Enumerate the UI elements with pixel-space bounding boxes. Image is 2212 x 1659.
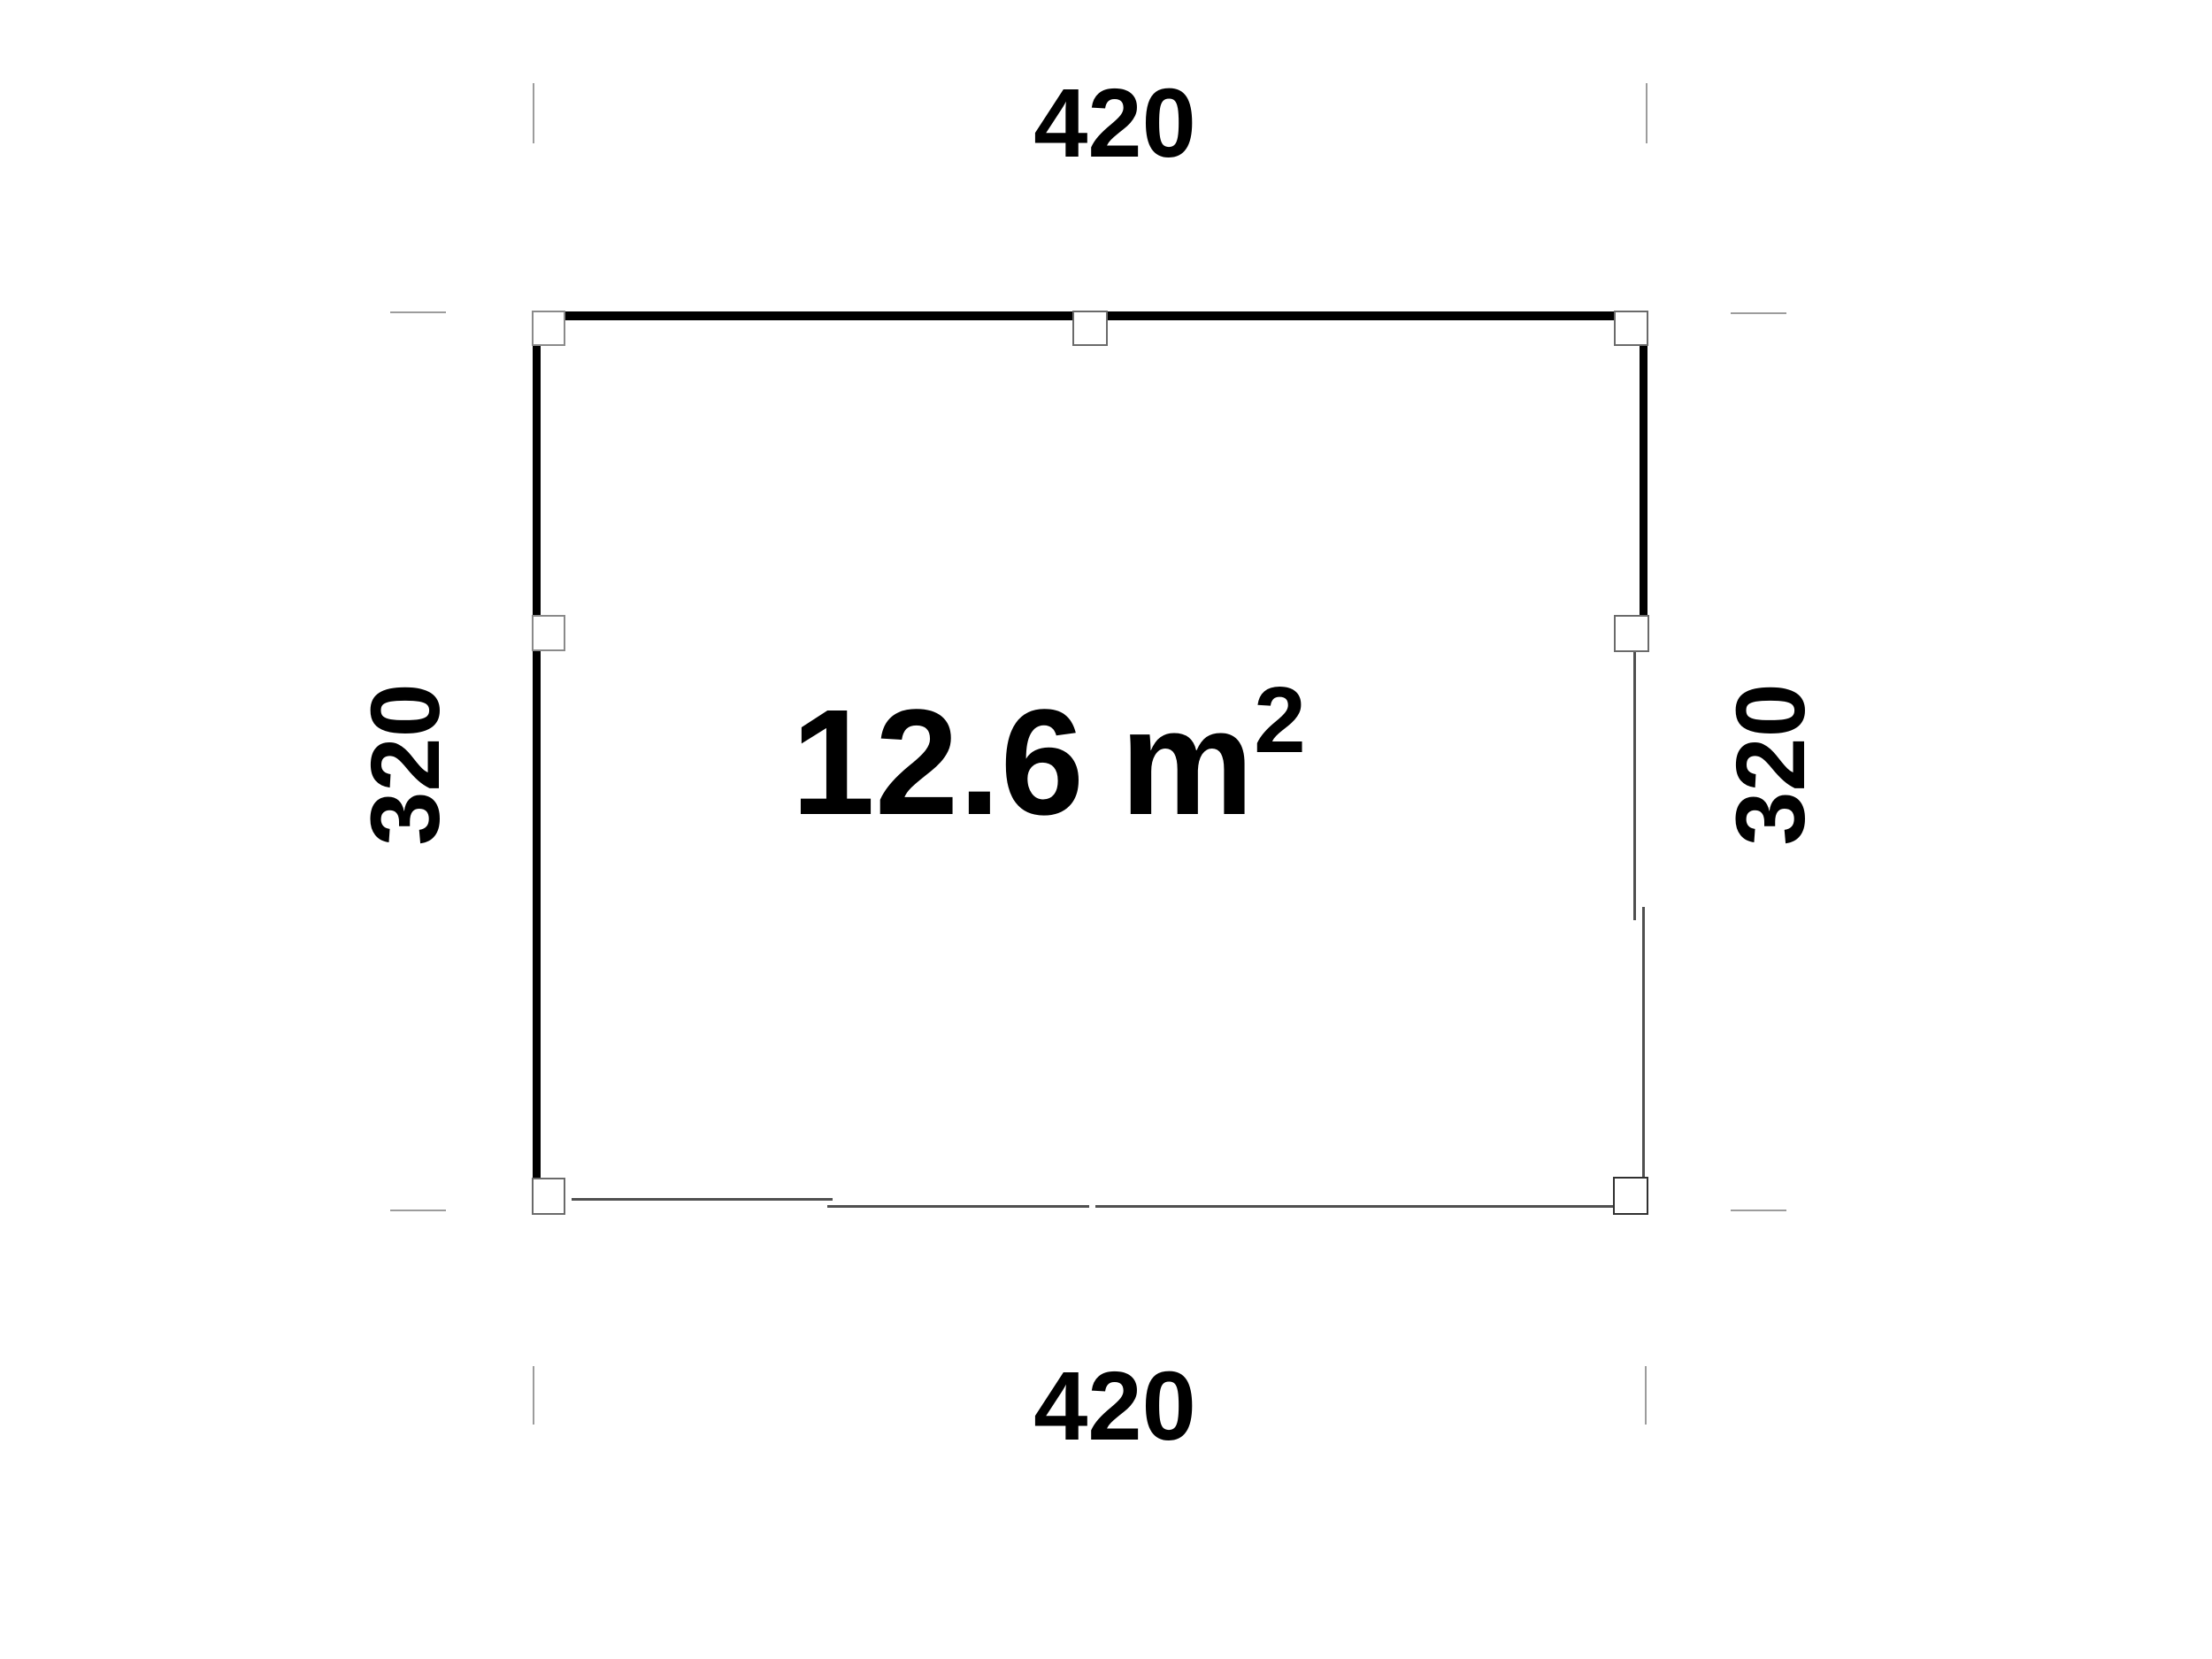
right-wall-upper <box>1640 342 1647 623</box>
area-label: 12.6m2 <box>791 687 1305 838</box>
dimension-label-right: 320 <box>1723 683 1820 846</box>
post-bottom-left <box>532 1178 565 1215</box>
area-unit: m <box>1120 679 1254 847</box>
area-exponent: 2 <box>1254 669 1306 772</box>
extension-line-top-left-vertical <box>533 83 534 143</box>
post-left-middle <box>532 615 565 651</box>
bottom-open-edge-right <box>1095 1205 1614 1208</box>
post-bottom-right <box>1613 1177 1648 1215</box>
right-open-edge-upper <box>1633 650 1636 920</box>
extension-line-right-top-horizontal <box>1731 312 1786 314</box>
bottom-open-edge-middle <box>827 1205 1089 1208</box>
extension-line-top-right-vertical <box>1646 83 1647 143</box>
floor-plan-canvas: 420 420 320 320 12.6m2 <box>0 0 2212 1659</box>
post-top-right <box>1614 311 1648 346</box>
left-wall <box>533 342 541 1184</box>
extension-line-bottom-left-vertical <box>533 1366 534 1425</box>
post-right-middle <box>1614 615 1649 652</box>
dimension-label-top: 420 <box>1033 75 1196 173</box>
dimension-label-bottom: 420 <box>1033 1358 1196 1455</box>
right-open-edge-lower <box>1642 907 1645 1179</box>
extension-line-bottom-right-vertical <box>1645 1366 1647 1425</box>
post-top-center <box>1072 311 1108 346</box>
bottom-open-edge-left <box>572 1198 833 1201</box>
dimension-label-left: 320 <box>357 683 455 846</box>
extension-line-left-top-horizontal <box>390 311 446 313</box>
extension-line-left-bottom-horizontal <box>390 1210 446 1211</box>
extension-line-right-bottom-horizontal <box>1731 1210 1786 1211</box>
area-value: 12.6 <box>791 679 1084 847</box>
post-top-left <box>532 311 565 346</box>
